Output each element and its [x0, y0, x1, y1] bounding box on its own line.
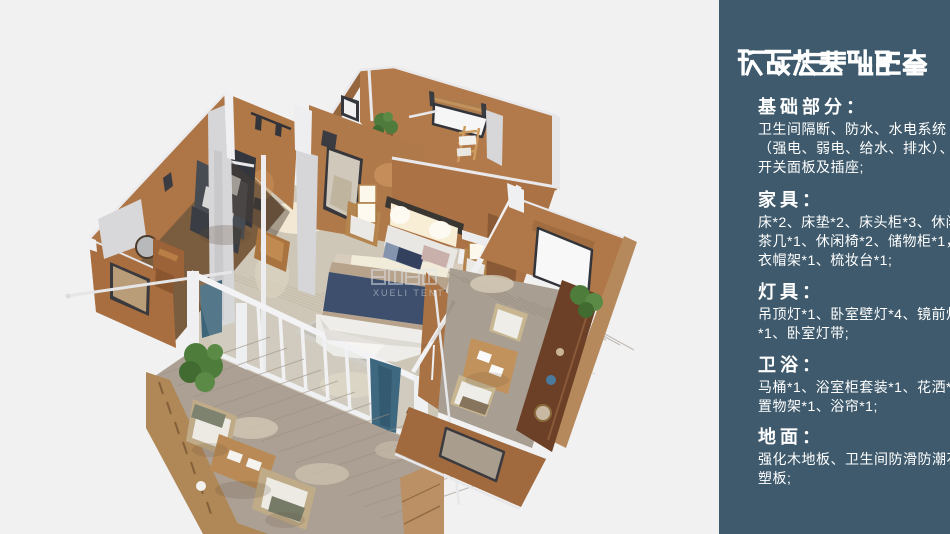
svg-text:XUELI TENT: XUELI TENT	[373, 288, 445, 298]
